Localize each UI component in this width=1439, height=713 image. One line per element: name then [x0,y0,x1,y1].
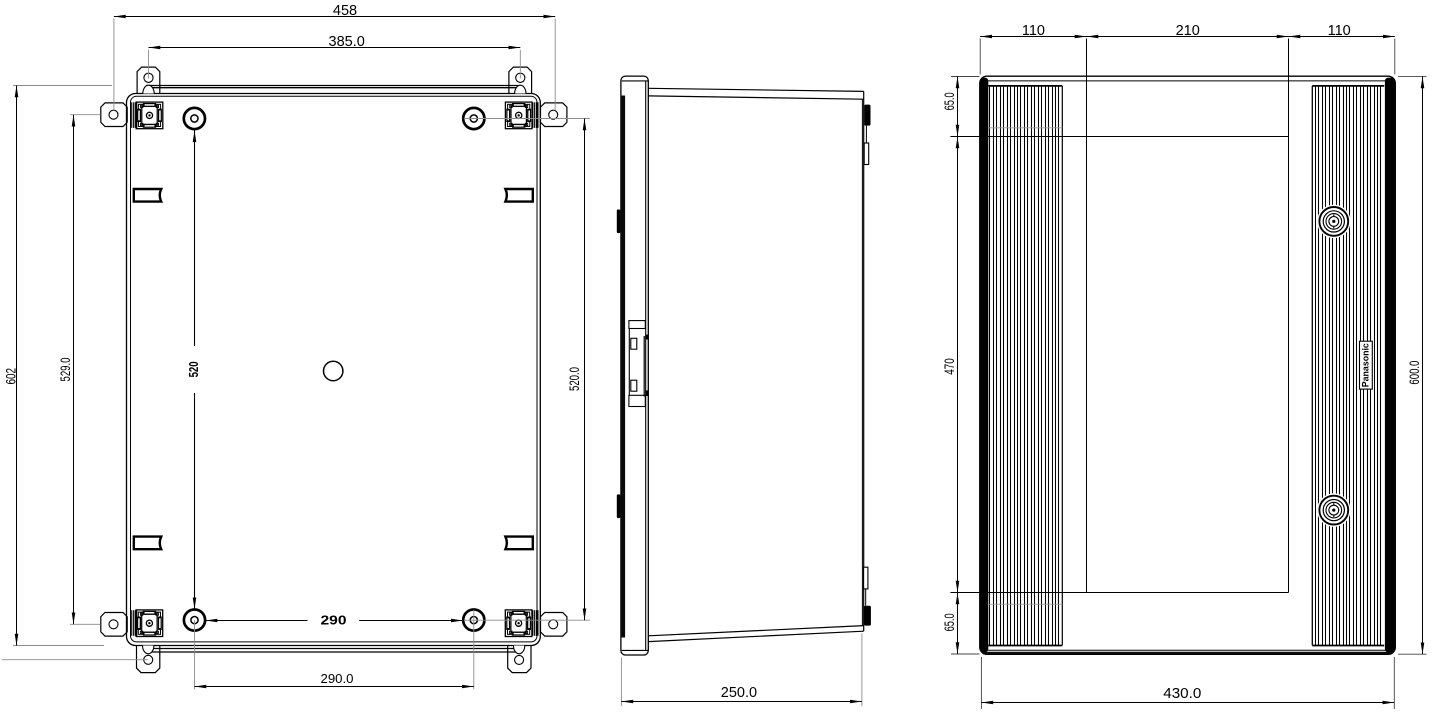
svg-text:110: 110 [1022,23,1045,39]
svg-text:110: 110 [1328,23,1351,39]
svg-text:65.0: 65.0 [942,613,958,631]
svg-text:290.0: 290.0 [321,672,354,686]
svg-text:Panasonic: Panasonic [1361,343,1372,387]
svg-text:290: 290 [321,613,347,627]
svg-text:520: 520 [187,361,201,377]
svg-text:430.0: 430.0 [1163,685,1201,702]
svg-text:529.0: 529.0 [58,357,74,381]
svg-text:602: 602 [4,368,20,385]
svg-text:520.0: 520.0 [567,367,583,391]
svg-text:65.0: 65.0 [942,92,958,110]
svg-text:385.0: 385.0 [329,34,365,50]
svg-text:210: 210 [1176,23,1200,39]
svg-text:250.0: 250.0 [721,685,757,701]
svg-text:600.0: 600.0 [1407,361,1423,385]
svg-text:470: 470 [942,358,958,375]
svg-text:458: 458 [333,3,357,19]
